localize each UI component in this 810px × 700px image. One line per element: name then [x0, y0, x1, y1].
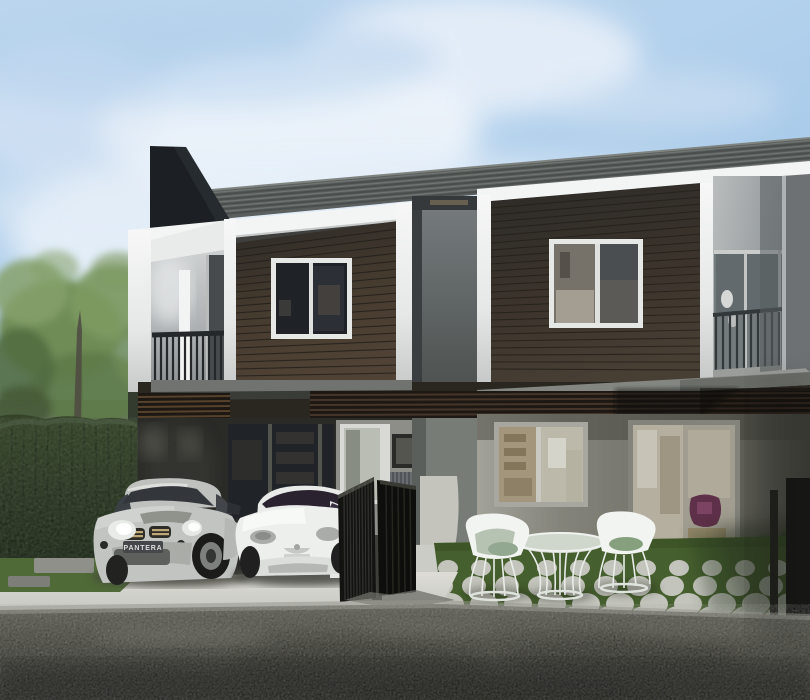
svg-text:PANTERA: PANTERA	[124, 545, 163, 552]
